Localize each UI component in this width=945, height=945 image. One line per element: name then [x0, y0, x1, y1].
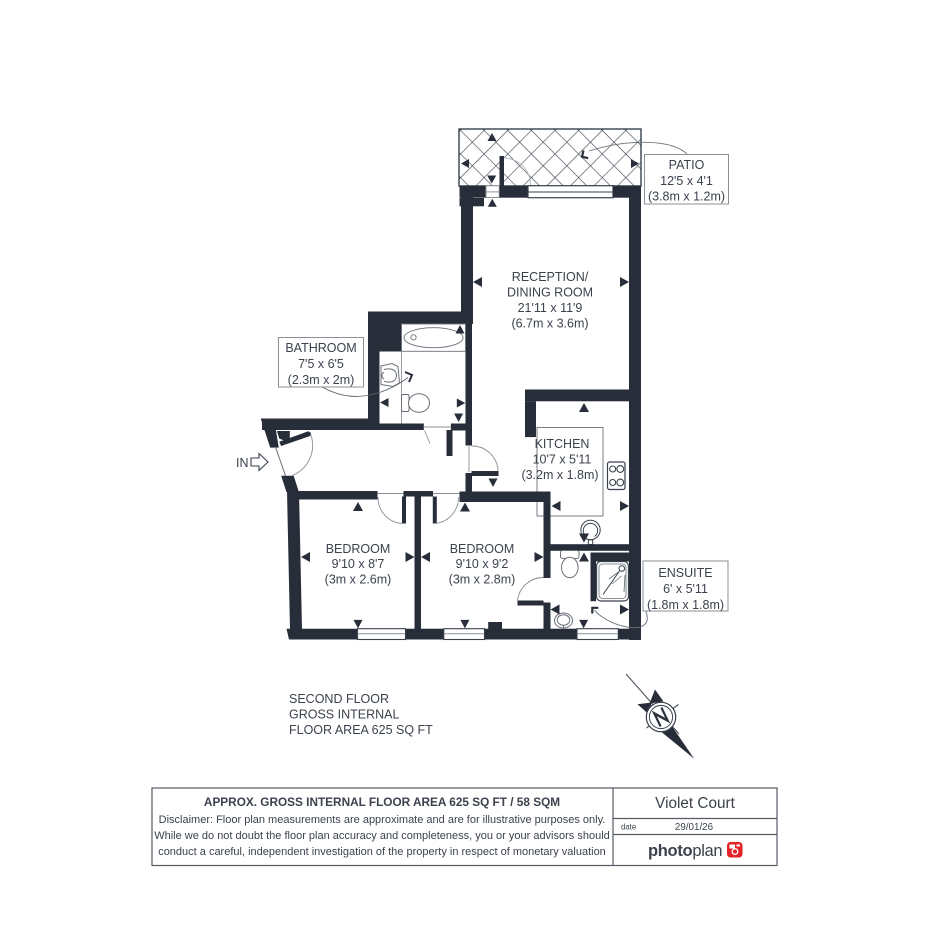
svg-text:(3m x 2.6m): (3m x 2.6m)	[325, 573, 392, 587]
svg-text:(3.8m x 1.2m): (3.8m x 1.2m)	[648, 190, 725, 204]
svg-text:21'11 x 11'9: 21'11 x 11'9	[518, 301, 583, 315]
svg-text:(3m x 2.8m): (3m x 2.8m)	[449, 573, 516, 587]
svg-text:9'10 x 9'2: 9'10 x 9'2	[456, 557, 509, 571]
svg-text:(6.7m x 3.6m): (6.7m x 3.6m)	[511, 317, 588, 331]
svg-text:10'7 x 5'11: 10'7 x 5'11	[533, 453, 592, 467]
svg-text:conduct a careful, independent: conduct a careful, independent investiga…	[158, 846, 606, 858]
svg-text:6' x 5'11: 6' x 5'11	[663, 582, 708, 596]
svg-text:12'5 x 4'1: 12'5 x 4'1	[660, 174, 713, 188]
svg-text:9'10 x 8'7: 9'10 x 8'7	[332, 557, 385, 571]
svg-text:IN: IN	[236, 456, 249, 470]
svg-text:BATHROOM: BATHROOM	[285, 341, 356, 355]
svg-text:(1.8m x 1.8m): (1.8m x 1.8m)	[647, 598, 724, 612]
svg-text:GROSS INTERNAL: GROSS INTERNAL	[289, 708, 399, 722]
svg-text:KITCHEN: KITCHEN	[535, 437, 590, 451]
svg-text:BEDROOM: BEDROOM	[326, 542, 391, 556]
svg-text:(2.3m x 2m): (2.3m x 2m)	[288, 373, 355, 387]
svg-text:ENSUITE: ENSUITE	[658, 566, 712, 580]
svg-text:Violet Court: Violet Court	[655, 795, 735, 812]
svg-text:Disclaimer: Floor plan measure: Disclaimer: Floor plan measurements are …	[159, 814, 606, 826]
svg-text:FLOOR AREA 625 SQ FT: FLOOR AREA 625 SQ FT	[289, 723, 433, 737]
svg-text:RECEPTION/: RECEPTION/	[512, 270, 589, 284]
svg-text:APPROX. GROSS INTERNAL FLOOR A: APPROX. GROSS INTERNAL FLOOR AREA 625 SQ…	[204, 795, 560, 809]
svg-text:29/01/26: 29/01/26	[675, 822, 714, 833]
svg-text:DINING ROOM: DINING ROOM	[507, 286, 593, 300]
svg-text:SECOND FLOOR: SECOND FLOOR	[289, 692, 389, 706]
svg-text:7'5 x 6'5: 7'5 x 6'5	[298, 357, 344, 371]
svg-text:PATIO: PATIO	[669, 158, 705, 172]
svg-text:date: date	[621, 823, 636, 832]
svg-text:(3.2m x 1.8m): (3.2m x 1.8m)	[521, 468, 598, 482]
svg-text:photoplan: photoplan	[648, 842, 722, 860]
svg-text:While we do not doubt the floo: While we do not doubt the floor plan acc…	[154, 830, 610, 842]
svg-text:BEDROOM: BEDROOM	[450, 542, 515, 556]
